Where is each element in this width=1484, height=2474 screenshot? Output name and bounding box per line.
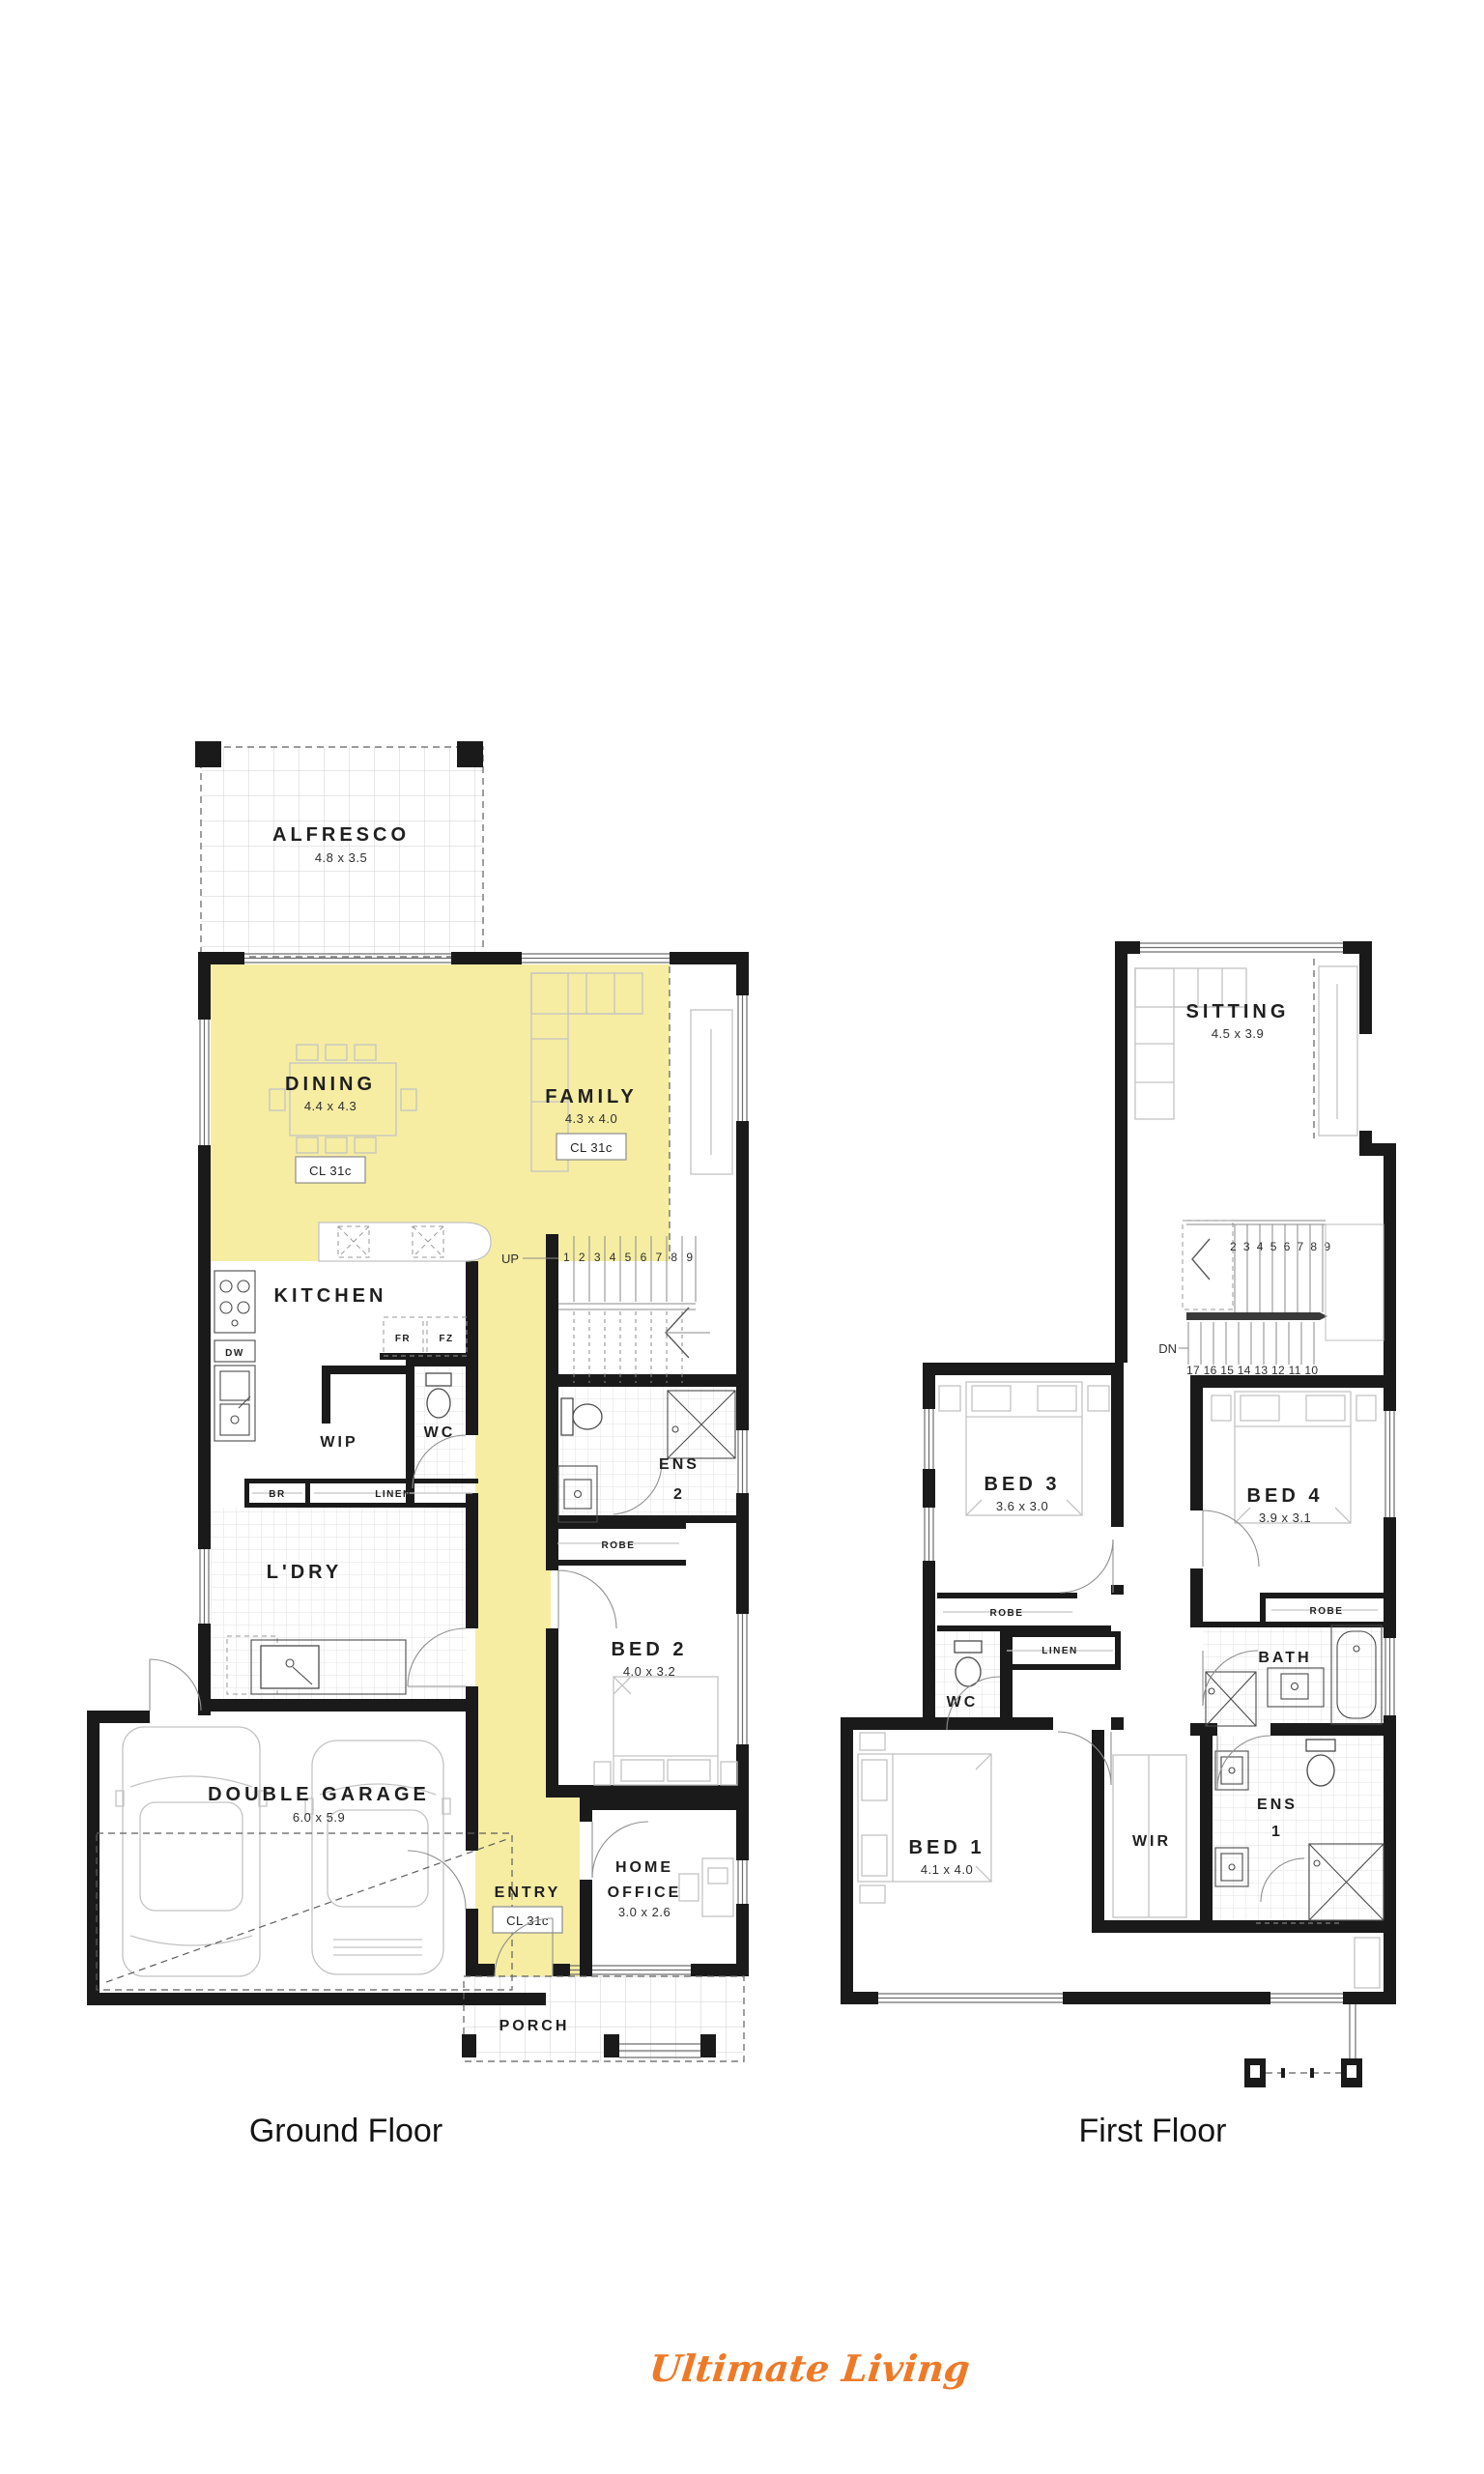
bed1-label: BED 1: [909, 1837, 985, 1858]
toilet-fixture: [1306, 1740, 1335, 1786]
bed4-dims: 3.9 x 3.1: [1259, 1510, 1311, 1525]
fridge-freezer: FR FZ: [384, 1317, 467, 1356]
bed2-bed: [594, 1677, 737, 1785]
bath-tiles: [1203, 1627, 1384, 1724]
bed3-label: BED 3: [985, 1474, 1061, 1495]
garage-label: DOUBLE GARAGE: [208, 1784, 430, 1805]
room-bed2: BED 2 4.0 x 3.2: [558, 1570, 737, 1785]
kitchen-sink: [214, 1366, 255, 1441]
kitchen-island: [319, 1223, 491, 1261]
dishwasher: DW: [214, 1340, 255, 1362]
floorplan-page: ALFRESCO 4.8 x 3.5: [0, 0, 1484, 2474]
stair-up-label: UP: [501, 1251, 519, 1266]
car: [116, 1727, 267, 1976]
family-ceiling-tag: CL 31c: [556, 1134, 626, 1160]
porch-label: PORCH: [499, 2018, 570, 2034]
office-desk: [679, 1858, 733, 1916]
ldry-label: L'DRY: [267, 1562, 342, 1583]
balcony-stub: [1244, 2004, 1362, 2087]
first-floor-caption: First Floor: [979, 2113, 1327, 2150]
dining-dims: 4.4 x 4.3: [304, 1099, 357, 1113]
entry-ceiling-tag: CL 31c: [493, 1907, 562, 1933]
alfresco-label: ALFRESCO: [272, 824, 410, 846]
ldry-tiles: [211, 1508, 466, 1699]
ens2-number: 2: [673, 1486, 685, 1503]
sitting-dims: 4.5 x 3.9: [1212, 1026, 1264, 1041]
svg-text:ROBE: ROBE: [990, 1608, 1024, 1619]
stairs-down: 2 3 4 5 6 7 8 9 17 16 15 14 13 12 11 10 …: [1158, 1221, 1384, 1377]
wall-niche: [1355, 1938, 1380, 1988]
robe-bed3: ROBE: [943, 1608, 1072, 1619]
bed1-bed: [858, 1733, 991, 1903]
room-sitting: SITTING 4.5 x 3.9: [1135, 959, 1357, 1138]
dining-label: DINING: [285, 1074, 376, 1095]
svg-text:CL 31c: CL 31c: [570, 1140, 613, 1155]
linen-first: LINEN: [1007, 1646, 1113, 1656]
brand-logo: Ultimate Living: [571, 2346, 1049, 2390]
svg-text:DW: DW: [225, 1348, 244, 1359]
office-dims: 3.0 x 2.6: [618, 1905, 671, 1919]
ground-floor-caption: Ground Floor: [172, 2113, 520, 2150]
dining-ceiling-tag: CL 31c: [296, 1157, 365, 1183]
car: [305, 1740, 450, 1974]
bed1-dims: 4.1 x 4.0: [921, 1862, 973, 1877]
ens1-label: ENS: [1257, 1797, 1298, 1813]
first-floor-plan: SITTING 4.5 x 3.9 2 3 4 5 6 7 8 9 17 16 …: [831, 928, 1401, 2107]
bed4-label: BED 4: [1247, 1485, 1324, 1507]
bed2-label: BED 2: [612, 1639, 688, 1660]
bed2-dims: 4.0 x 3.2: [623, 1664, 675, 1679]
wc-label: WC: [424, 1424, 456, 1441]
alfresco-post: [195, 741, 221, 767]
stair-numbers-bottom: 17 16 15 14 13 12 11 10: [1186, 1364, 1318, 1377]
ens1-number: 1: [1271, 1824, 1283, 1840]
family-dims: 4.3 x 4.0: [565, 1111, 617, 1126]
alfresco-dims: 4.8 x 3.5: [315, 850, 367, 865]
ens2-label: ENS: [659, 1456, 699, 1473]
robe-bed4: ROBE: [1271, 1606, 1378, 1617]
room-bed3: BED 3 3.6 x 3.0 ROBE: [939, 1382, 1113, 1619]
kitchen-label: KITCHEN: [274, 1285, 387, 1307]
entry-label: ENTRY: [495, 1884, 561, 1901]
svg-text:CL 31c: CL 31c: [309, 1164, 352, 1178]
room-bed4: BED 4 3.9 x 3.1 ROBE: [1203, 1392, 1378, 1617]
bed3-dims: 3.6 x 3.0: [996, 1499, 1048, 1513]
sitting-label: SITTING: [1186, 1001, 1290, 1022]
room-home-office: HOME OFFICE 3.0 x 2.6: [592, 1822, 733, 1919]
alfresco-post: [457, 741, 483, 767]
garage-dims: 6.0 x 5.9: [293, 1810, 345, 1825]
br-label: BR: [269, 1489, 285, 1500]
office-label-2: OFFICE: [608, 1884, 682, 1901]
stair-dn-label: DN: [1158, 1341, 1177, 1356]
stair-numbers-top: 2 3 4 5 6 7 8 9: [1230, 1240, 1330, 1253]
linen-label: LINEN: [375, 1489, 412, 1500]
room-wir: WIR: [1113, 1755, 1186, 1917]
wir-label: WIR: [1132, 1833, 1171, 1850]
svg-text:FR: FR: [395, 1334, 411, 1344]
room-alfresco: ALFRESCO 4.8 x 3.5: [195, 741, 483, 957]
svg-text:FZ: FZ: [439, 1334, 453, 1344]
wip-label: WIP: [320, 1434, 357, 1451]
svg-text:LINEN: LINEN: [1042, 1646, 1078, 1656]
stair-numbers: 1 2 3 4 5 6 7 8 9: [563, 1251, 693, 1264]
family-label: FAMILY: [545, 1086, 638, 1108]
sitting-robe: [1319, 966, 1357, 1136]
svg-text:ROBE: ROBE: [602, 1540, 636, 1551]
toilet-fixture: [426, 1373, 451, 1418]
bath-label: BATH: [1258, 1650, 1311, 1666]
robe-ground: ROBE: [557, 1540, 679, 1551]
office-label-1: HOME: [615, 1859, 673, 1876]
cooktop: [214, 1271, 255, 1333]
ground-floor-plan: ALFRESCO 4.8 x 3.5: [72, 720, 758, 2092]
bed3-bed: [939, 1382, 1109, 1515]
svg-text:ROBE: ROBE: [1310, 1606, 1344, 1617]
room-bed1: BED 1 4.1 x 4.0: [858, 1732, 1111, 1903]
toilet-fixture: [955, 1641, 982, 1686]
sitting-sofa: [1135, 968, 1246, 1119]
svg-text:CL 31c: CL 31c: [506, 1913, 549, 1928]
